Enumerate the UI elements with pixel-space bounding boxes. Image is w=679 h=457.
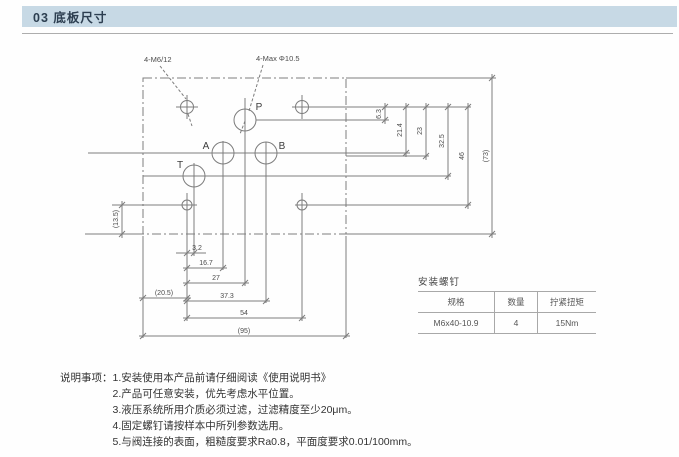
- dim-46: 46: [459, 152, 466, 160]
- notes-section: 说明事项： 1.安装使用本产品前请仔细阅读《使用说明书》 2.产品可任意安装，优…: [60, 370, 418, 450]
- note-item-3: 3.液压系统所用介质必须过滤，过滤精度至少20μm。: [113, 402, 418, 418]
- screw-spec-value: M6x40-10.9: [418, 313, 495, 334]
- screw-torque-value: 15Nm: [538, 313, 597, 334]
- note-item-1: 1.安装使用本产品前请仔细阅读《使用说明书》: [113, 370, 418, 386]
- col-torque-header: 拧紧扭矩: [538, 292, 597, 313]
- dim-32-5: 32.5: [439, 134, 446, 148]
- screw-qty-value: 4: [495, 313, 538, 334]
- dim-20-5: (20.5): [155, 290, 173, 297]
- note-item-2: 2.产品可任意安装，优先考虑水平位置。: [113, 386, 418, 402]
- ports-max-callout: 4-Max Φ10.5: [256, 54, 300, 63]
- notes-label: 说明事项：: [60, 370, 113, 450]
- col-spec-header: 规格: [418, 292, 495, 313]
- dim-3-2: 3.2: [192, 245, 202, 252]
- screw-table-title: 安装螺钉: [418, 274, 596, 288]
- screw-table-header-row: 规格 数量 拧紧扭矩: [418, 292, 596, 313]
- note-item-4: 4.固定螺钉请按样本中所列参数选用。: [113, 418, 418, 434]
- port-holes: [183, 109, 277, 187]
- dim-6-3: 6.3: [376, 109, 383, 119]
- screw-table-data-row: M6x40-10.9 4 15Nm: [418, 313, 596, 334]
- port-b-label: B: [279, 141, 286, 152]
- dim-23: 23: [417, 127, 424, 135]
- port-t-label: T: [177, 160, 183, 171]
- dim-37-3: 37.3: [220, 293, 234, 300]
- catalog-page: 03 底板尺寸: [0, 0, 679, 457]
- col-qty-header: 数量: [495, 292, 538, 313]
- callout-leaders: [160, 65, 263, 134]
- thread-callout: 4-M6/12: [144, 55, 172, 64]
- dim-54: 54: [240, 310, 248, 317]
- dim-95: (95): [238, 328, 250, 335]
- dim-21-4: 21.4: [397, 123, 404, 137]
- note-item-5: 5.与阀连接的表面，粗糙度要求Ra0.8，平面度要求0.01/100mm。: [113, 434, 418, 450]
- port-a-label: A: [203, 141, 210, 152]
- port-p-label: P: [256, 102, 263, 113]
- dim-73: (73): [483, 150, 490, 162]
- mounting-screw-table: 安装螺钉 规格 数量 拧紧扭矩 M6x40-10.9 4 15Nm: [418, 274, 596, 334]
- dim-13-5: (13.5): [113, 210, 120, 228]
- dim-27: 27: [212, 275, 220, 282]
- callout-labels: 4-M6/12 4-Max Φ10.5: [144, 54, 300, 64]
- dim-16-7: 16.7: [199, 260, 213, 267]
